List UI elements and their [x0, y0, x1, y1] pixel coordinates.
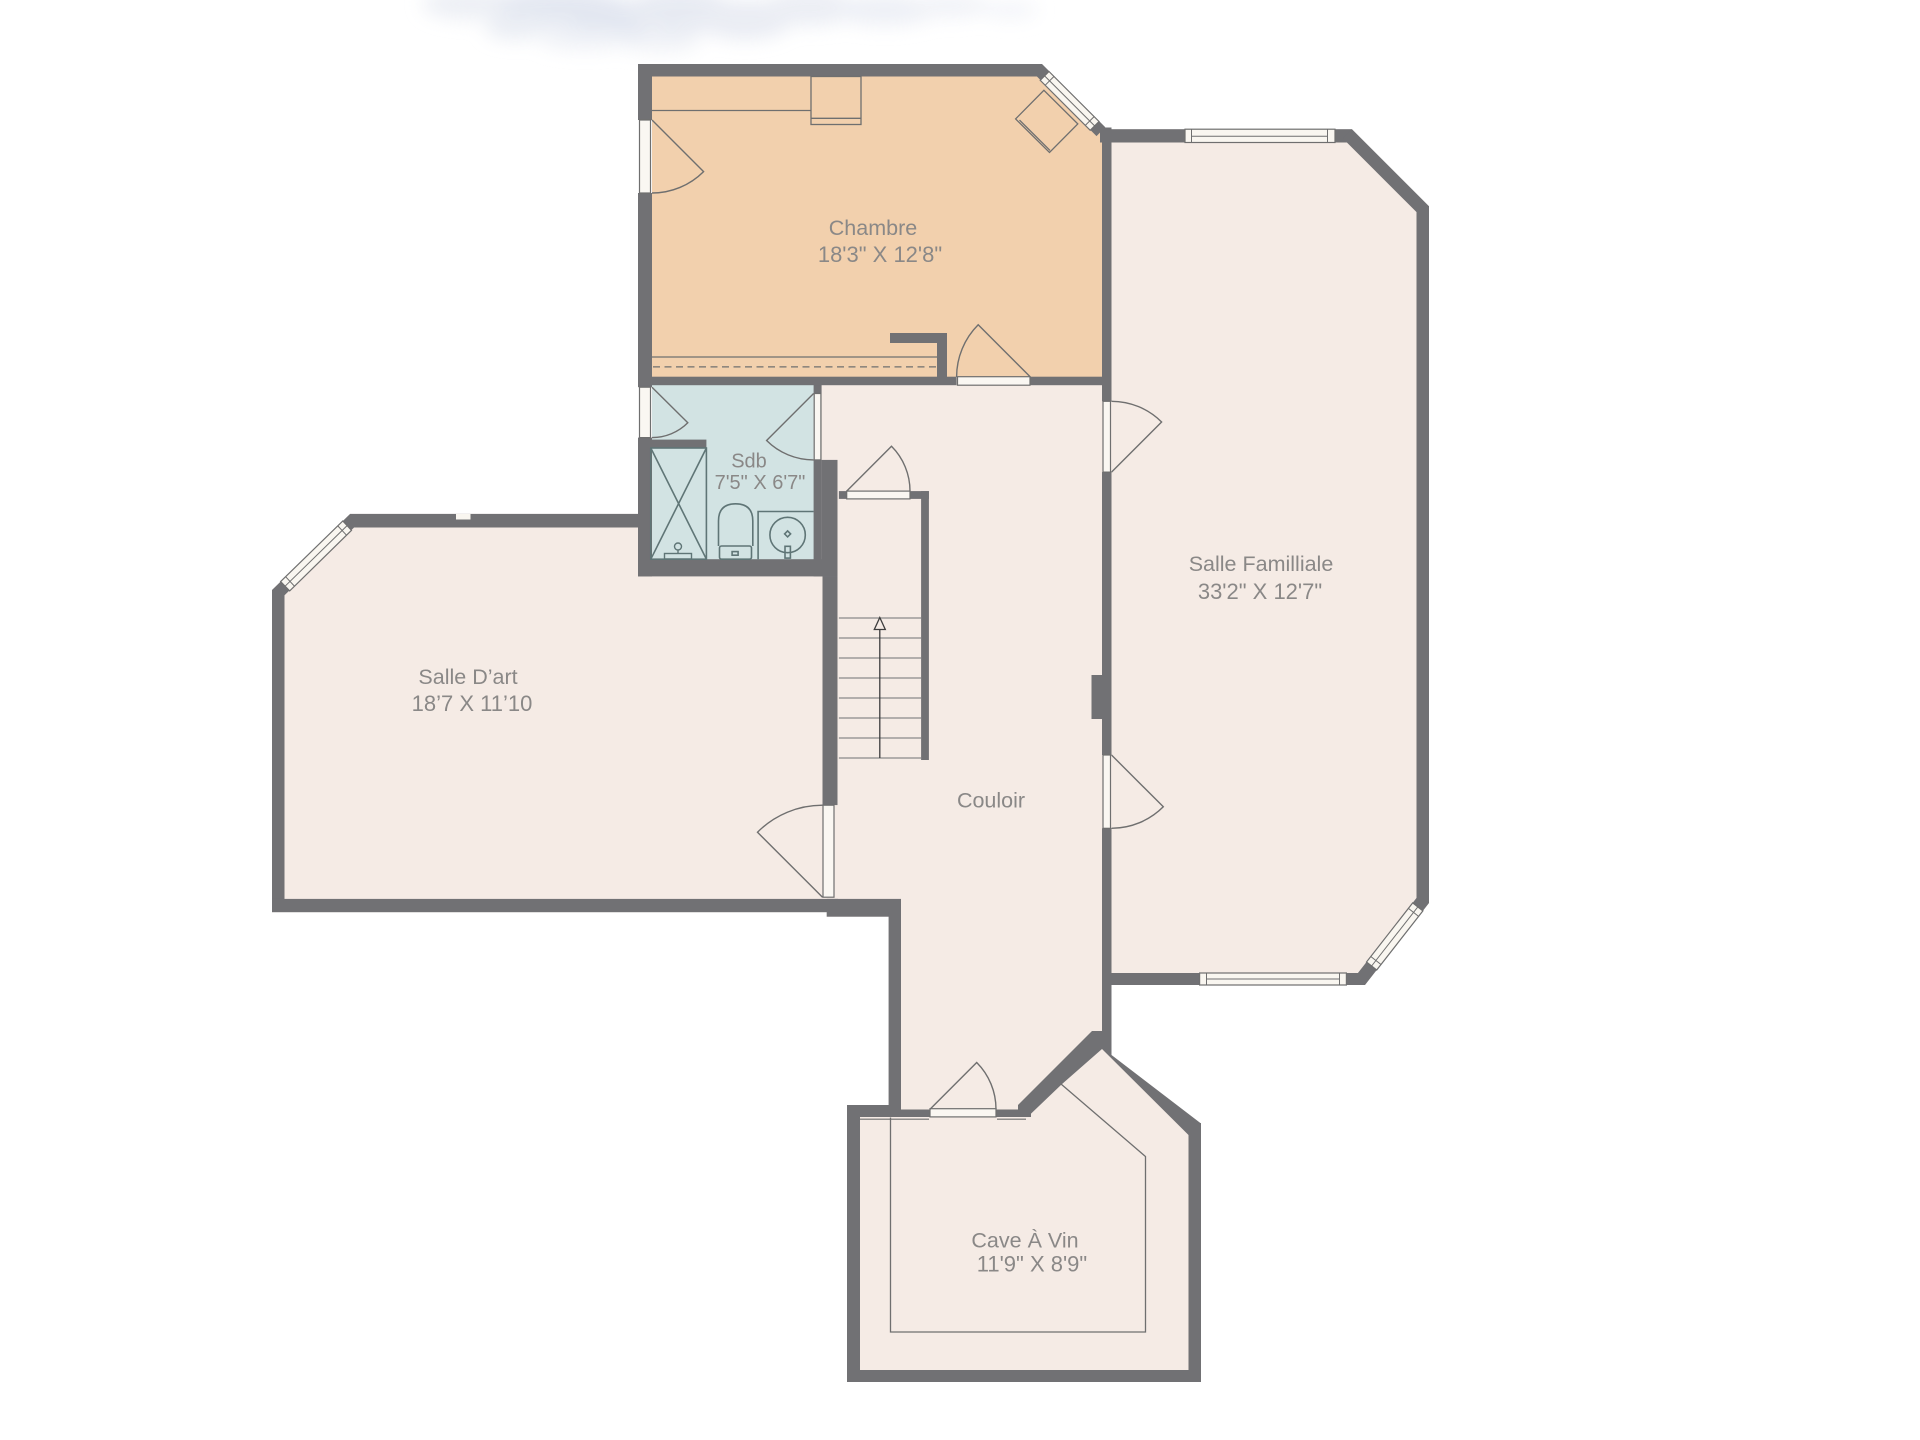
svg-text:11'9" X 8'9": 11'9" X 8'9" [977, 1252, 1087, 1277]
svg-text:Chambre: Chambre [829, 216, 917, 240]
svg-text:7'5" X 6'7": 7'5" X 6'7" [715, 472, 806, 494]
svg-text:18’7 X 11’10: 18’7 X 11’10 [412, 691, 533, 716]
svg-text:Couloir: Couloir [957, 789, 1025, 813]
svg-text:Sdb: Sdb [731, 451, 767, 473]
svg-text:33'2" X 12'7": 33'2" X 12'7" [1198, 579, 1322, 604]
svg-text:Cave À Vin: Cave À Vin [971, 1228, 1078, 1253]
svg-text:Salle Familliale: Salle Familliale [1189, 552, 1334, 576]
svg-text:Salle D’art: Salle D’art [418, 665, 517, 689]
svg-text:18'3" X 12'8": 18'3" X 12'8" [818, 242, 942, 267]
